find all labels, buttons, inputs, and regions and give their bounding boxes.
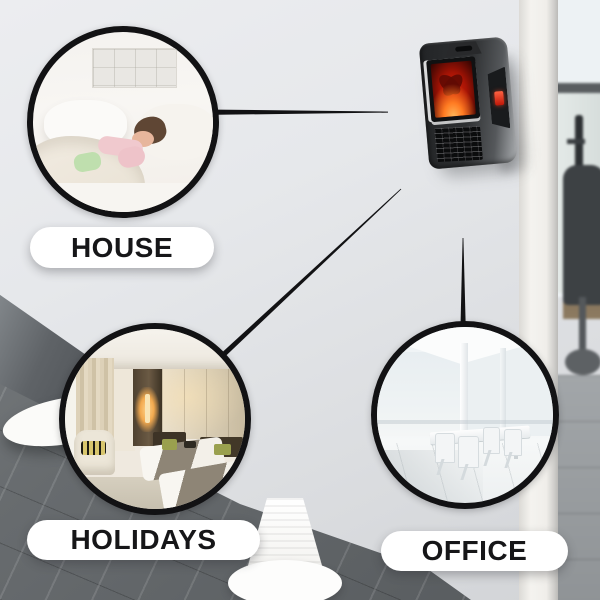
holidays-label: HOLIDAYS [70, 524, 216, 556]
office-label-pill: OFFICE [381, 531, 568, 571]
accent-pillow [214, 444, 230, 455]
wall-art [92, 48, 177, 88]
meeting-chair [483, 427, 501, 454]
accent-pillow [162, 439, 176, 450]
product-collage: HOUSE HOLIDAYS OFFICE [0, 0, 600, 600]
horizon-line [377, 420, 553, 424]
office-photo-circle [371, 321, 559, 509]
holidays-label-pill: HOLIDAYS [27, 520, 260, 560]
meeting-chair [435, 433, 455, 463]
house-label-pill: HOUSE [30, 227, 214, 268]
house-photo-circle [27, 26, 219, 218]
flame-glow [432, 82, 476, 118]
connector-house-line [217, 110, 388, 115]
office-label: OFFICE [422, 535, 528, 567]
holidays-photo-circle [59, 323, 251, 515]
heater-product-image [419, 36, 518, 169]
house-label: HOUSE [71, 232, 173, 264]
heater-air-grille [434, 126, 483, 162]
meeting-chair [504, 429, 522, 456]
connector-holidays-line [222, 189, 401, 356]
flame-effect [430, 61, 476, 118]
striped-cushion [81, 441, 106, 455]
nightstand-phone [184, 441, 197, 448]
heater-flame-display [426, 56, 480, 122]
meeting-chair [458, 436, 479, 468]
hotel-padded-wall [162, 369, 245, 439]
connector-office-line [461, 238, 466, 322]
hotel-wall [114, 369, 136, 452]
wall-lamp [145, 394, 150, 423]
heater-led-display [494, 91, 504, 106]
